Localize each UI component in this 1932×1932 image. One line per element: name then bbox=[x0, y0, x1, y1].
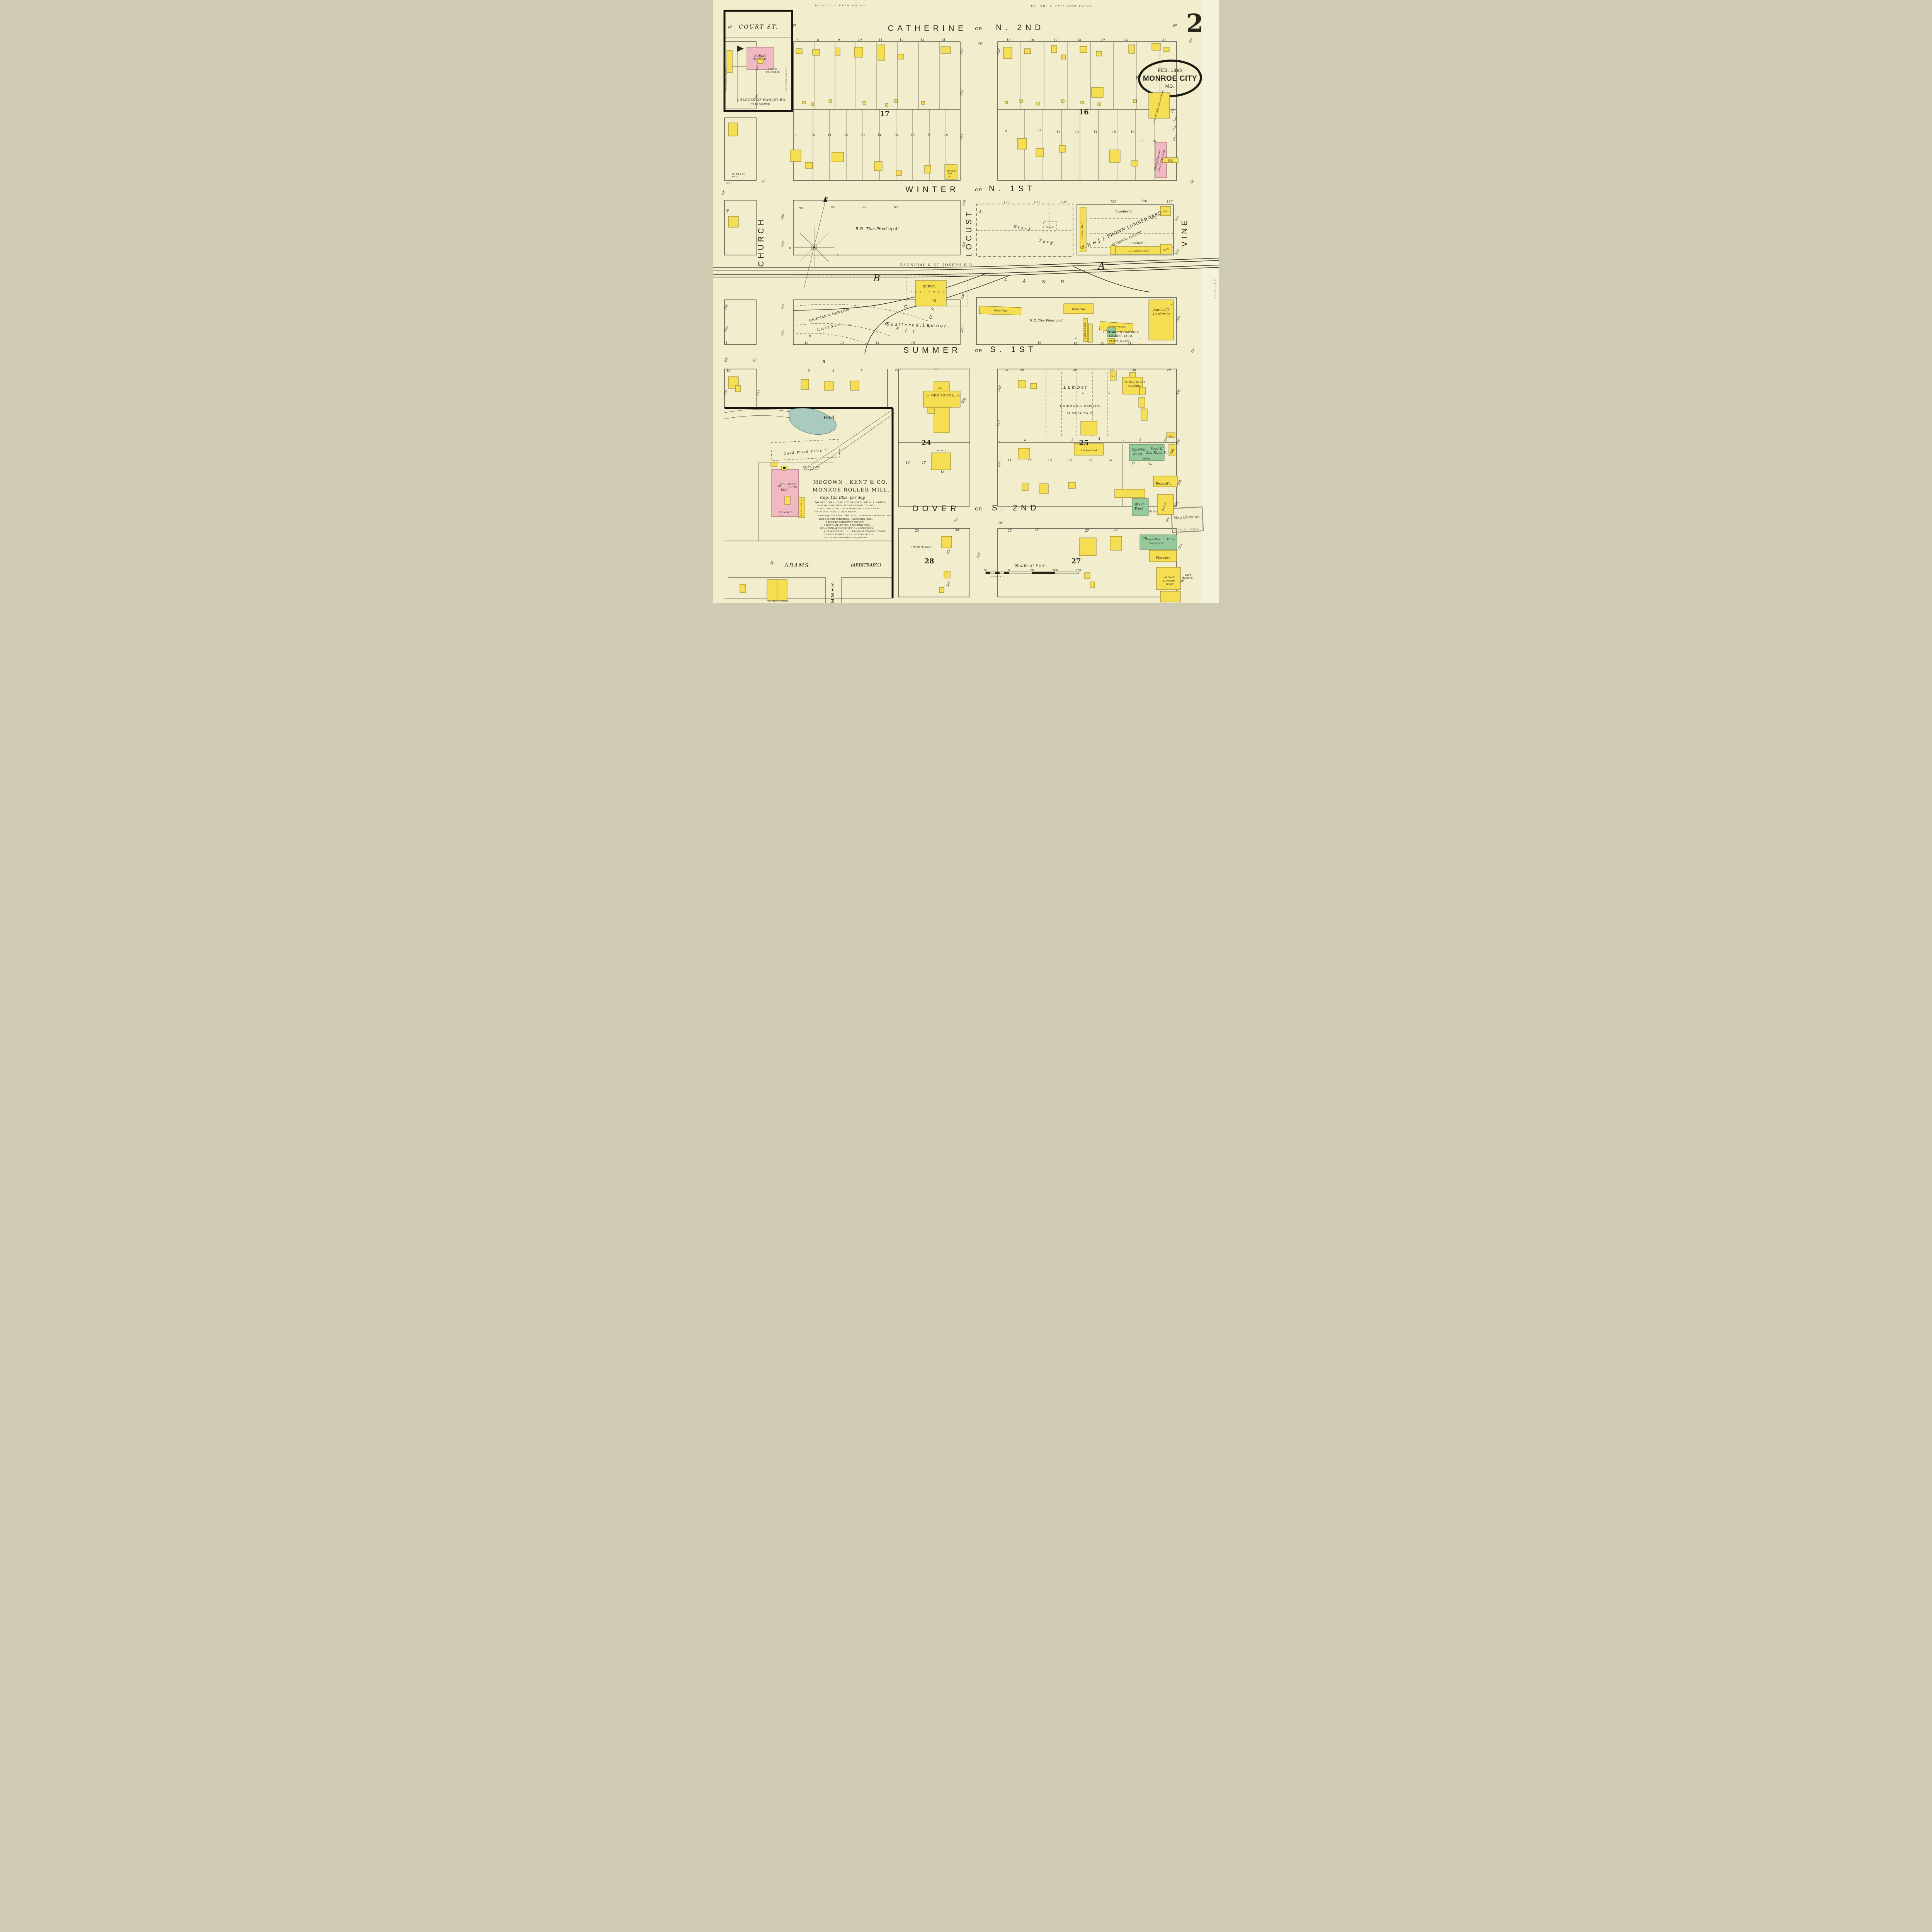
map-label: 6' bbox=[1082, 393, 1084, 395]
map-label: 2ND 2 SMITH PURIFIERS. 1 SCALPING REEL. bbox=[819, 518, 873, 520]
building bbox=[790, 150, 801, 162]
map-label: 78' bbox=[998, 521, 1003, 525]
map-label: 78' bbox=[978, 42, 983, 46]
map-label: FR. STABLE. bbox=[766, 71, 781, 73]
map-label: 92 bbox=[894, 206, 898, 209]
block-number-17: 17 bbox=[880, 110, 889, 118]
map-label: 4 bbox=[1098, 437, 1100, 440]
building bbox=[1005, 101, 1008, 104]
building bbox=[1024, 49, 1031, 54]
map-label: 25 bbox=[1007, 529, 1012, 532]
building bbox=[1131, 161, 1138, 166]
map-label: 3 B. bbox=[779, 515, 783, 517]
building bbox=[1160, 591, 1180, 602]
map-label: VAC. bbox=[1168, 435, 1174, 438]
map-label: 23 bbox=[933, 367, 937, 371]
map-label: ENG. 128 H.P. bbox=[780, 483, 796, 485]
label-megown-kent: MEGOWN , KENT & CO. bbox=[813, 480, 888, 485]
map-label: 3RD 4 DUNLAP FLOUR REELS - 2 PURIFIERS. bbox=[820, 527, 874, 530]
map-label: Lumber 5' bbox=[1129, 241, 1146, 245]
map-label: 18 bbox=[944, 133, 948, 137]
map-label: 12 bbox=[844, 133, 848, 137]
building bbox=[1079, 538, 1096, 556]
building bbox=[1141, 409, 1147, 420]
map-label: 14 bbox=[876, 341, 879, 345]
map-label: 93 bbox=[862, 206, 866, 209]
building bbox=[727, 50, 732, 73]
building bbox=[1037, 102, 1040, 105]
scale-title: Scale of Feet. bbox=[1015, 563, 1048, 568]
map-label: 40 30 20 10 bbox=[991, 576, 1004, 578]
map-label: 24 bbox=[955, 528, 959, 532]
building bbox=[1096, 51, 1102, 56]
building bbox=[854, 47, 863, 57]
map-rect bbox=[1032, 572, 1055, 574]
map-label: 8' bbox=[809, 334, 812, 338]
map-label: Bl. Sm. bbox=[1149, 510, 1158, 513]
map-label: 127 bbox=[1167, 200, 1173, 203]
building bbox=[1081, 421, 1097, 435]
map-label: 10 bbox=[726, 369, 730, 372]
map-label: 15 bbox=[911, 341, 915, 345]
map-label: 13 bbox=[1048, 459, 1052, 462]
map-label: 125 bbox=[1110, 200, 1116, 203]
building bbox=[1061, 55, 1066, 59]
map-date: FEB. 1893 bbox=[1158, 68, 1182, 73]
label-platform: P L A T F O R M . bbox=[911, 291, 950, 293]
label-railroad: HANNIBAL & ST. JOSEPH R.R. bbox=[900, 264, 975, 267]
map-label: W bbox=[789, 247, 791, 250]
map-rect bbox=[995, 572, 1000, 574]
map-label: 11 bbox=[879, 38, 883, 42]
map-label: Shop. bbox=[1133, 452, 1143, 456]
label-depot: DEPOT. bbox=[923, 285, 936, 288]
building bbox=[1040, 484, 1048, 494]
map-label: 100' TO bbox=[768, 68, 777, 71]
map-label: 2 bbox=[1163, 447, 1164, 449]
map-label: 8 bbox=[817, 38, 819, 42]
map-label: 20 bbox=[1100, 342, 1104, 345]
note-hanley: 2 BLOCKS OF HANLEY HO. bbox=[737, 98, 787, 102]
building bbox=[1092, 87, 1103, 97]
map-label: 23 bbox=[915, 529, 919, 532]
label-public-school: PUBLIC bbox=[754, 54, 767, 58]
map-label: 14 bbox=[1068, 459, 1072, 462]
map-label: N bbox=[1041, 279, 1046, 284]
map-label: A bbox=[978, 209, 982, 214]
map-label: EA. FLOOR. FUEL: COAL & WOOD. bbox=[815, 511, 856, 513]
building bbox=[1129, 45, 1134, 53]
map-label: 12 bbox=[804, 341, 808, 345]
map-label: LUMBER YARD. bbox=[1067, 412, 1095, 415]
building bbox=[835, 48, 840, 55]
map-state: MO. bbox=[1165, 84, 1175, 89]
map-label: R bbox=[822, 359, 825, 364]
map-label: Painting 2nd. bbox=[1148, 542, 1165, 545]
map-label: 50 bbox=[984, 568, 987, 572]
building bbox=[824, 382, 833, 390]
map-label: Lumber Shed. bbox=[1084, 322, 1087, 339]
map-label: 19 bbox=[1101, 38, 1105, 42]
building bbox=[728, 216, 738, 227]
building bbox=[1018, 380, 1026, 388]
map-label: 28 bbox=[1132, 368, 1136, 372]
map-label: PRIVATE. bbox=[936, 450, 947, 452]
label-carriage-wagon-depot: CARRIAGE bbox=[1163, 577, 1175, 579]
map-label: B bbox=[873, 273, 880, 284]
label-roller-mill: MONROE ROLLER MILL. bbox=[813, 487, 890, 493]
map-label: 13 bbox=[840, 341, 844, 345]
building bbox=[942, 536, 952, 548]
map-label: Off. bbox=[1109, 340, 1113, 342]
label-hickman-hawkins-south: HICKMAN & HAWKINS bbox=[1060, 405, 1102, 408]
building bbox=[740, 584, 745, 593]
map-label: 17 bbox=[1131, 462, 1136, 465]
map-label: Grain W.Ho. bbox=[779, 511, 794, 514]
building bbox=[777, 580, 787, 600]
building bbox=[850, 381, 859, 390]
map-label: A bbox=[1097, 260, 1105, 271]
map-label: 6' bbox=[1108, 393, 1110, 395]
building bbox=[1085, 573, 1090, 579]
map-label: 17 bbox=[1139, 139, 1143, 143]
margin-note: DETACHED FARM DW'GS bbox=[815, 5, 866, 7]
street-n-1st: N. 1ST bbox=[989, 184, 1036, 193]
block-number-24: 24 bbox=[921, 439, 931, 447]
building bbox=[1129, 372, 1136, 377]
map-label: 6' bbox=[1075, 338, 1077, 340]
building bbox=[1139, 387, 1146, 395]
map-label: 150 bbox=[1076, 568, 1081, 572]
map-label: 13 bbox=[1075, 130, 1079, 134]
map-label: W I N D O W S bbox=[801, 500, 803, 517]
map-label: 10 bbox=[858, 38, 862, 42]
label-grain-warehouse: Grain W.Ho. bbox=[994, 309, 1009, 312]
building bbox=[1017, 138, 1027, 149]
map-label: N O E X P O S U R E . bbox=[725, 67, 728, 92]
sanborn-map-page: DETACHED FARM DW'GSBR. CH. & DETACHED DW… bbox=[713, 0, 1219, 603]
building bbox=[885, 104, 888, 106]
building bbox=[813, 49, 820, 55]
building bbox=[1133, 100, 1136, 103]
map-label: 18 bbox=[940, 470, 944, 474]
label-grain-warehouse: Grain W.Ho. bbox=[1072, 308, 1087, 311]
map-label: 2 GRAY CENTRIF. " - 1 DUST COLLECTOR. bbox=[824, 534, 874, 536]
map-label: 100 bbox=[1053, 568, 1058, 572]
map-label: L.E.T. bbox=[1185, 574, 1191, 577]
map-label: 9 bbox=[838, 38, 840, 42]
building bbox=[1059, 145, 1065, 152]
building bbox=[1164, 47, 1169, 52]
label-monroe-house: MONROE HO. bbox=[1124, 381, 1146, 384]
map-label: NO WATCHMAN. HEAT: 1 STOVE 1ST FL. OF MI… bbox=[815, 502, 886, 504]
street-adams: ADAMS. bbox=[784, 563, 811, 569]
building bbox=[922, 101, 925, 104]
map-label: Feed & bbox=[1150, 447, 1163, 451]
map-label: E bbox=[837, 254, 838, 256]
map-label: OR bbox=[975, 507, 982, 512]
map-label: 16 bbox=[906, 461, 910, 464]
map-label: 17 bbox=[922, 461, 926, 464]
map-label: 20 bbox=[1124, 38, 1128, 42]
map-label: 14 bbox=[1094, 130, 1097, 134]
map-label: (OLD) bbox=[1143, 457, 1150, 460]
map-label: Lumber Shed. bbox=[1081, 222, 1084, 239]
map-label: 16 bbox=[1108, 459, 1112, 462]
map-label: 0 bbox=[1008, 568, 1010, 572]
map-label: DEPOT. bbox=[1165, 583, 1174, 586]
map-label: 50 bbox=[1031, 568, 1034, 572]
map-label: 27 bbox=[1109, 368, 1114, 372]
map-label: 26 bbox=[1034, 528, 1039, 532]
map-label: 60' TO 2 ST. bbox=[732, 173, 745, 175]
map-label: 22 bbox=[895, 368, 899, 372]
map-rect bbox=[986, 572, 990, 574]
label-repository: Reposit'y bbox=[1155, 482, 1171, 486]
building bbox=[878, 45, 885, 60]
building bbox=[944, 571, 950, 578]
map-label: OFF. bbox=[1111, 376, 1116, 378]
street-summer: SUMMER bbox=[903, 346, 961, 355]
map-label: (ARBITRARY.) bbox=[851, 563, 881, 568]
map-label: 8' bbox=[848, 323, 851, 327]
label-carpenter-shop: Carp'ter bbox=[1132, 448, 1146, 452]
building bbox=[728, 123, 738, 136]
map-label: 2nd Hand S. bbox=[1146, 451, 1167, 455]
map-label: 21 bbox=[1127, 342, 1131, 345]
map-label: 15 bbox=[1112, 130, 1116, 134]
building bbox=[1022, 483, 1028, 491]
map-label: 122 bbox=[1003, 201, 1009, 204]
building bbox=[1139, 397, 1145, 407]
map-label: 25 bbox=[1020, 368, 1024, 372]
building bbox=[1110, 536, 1122, 550]
map-label: 29 bbox=[1167, 368, 1171, 372]
sheet-number: 2 bbox=[1186, 9, 1204, 38]
map-label: SCALE. bbox=[1046, 226, 1054, 229]
map-label: 124 bbox=[1061, 201, 1066, 204]
building bbox=[803, 101, 805, 104]
map-label: N bbox=[826, 197, 828, 199]
block-number-25: 25 bbox=[1079, 439, 1088, 447]
map-label: 12 bbox=[1028, 459, 1032, 462]
building bbox=[1098, 103, 1100, 105]
label-wood-work: Wood bbox=[1134, 503, 1144, 507]
map-label: FR. D. bbox=[732, 176, 739, 178]
building bbox=[796, 49, 802, 54]
map-label: N O E X P O S U R E . bbox=[786, 67, 788, 92]
map-label: 28 bbox=[1113, 528, 1117, 532]
map-label: BOARDING. bbox=[1128, 385, 1141, 388]
building bbox=[1036, 148, 1044, 157]
street-winter: WINTER bbox=[905, 185, 959, 194]
building bbox=[863, 101, 866, 104]
map-label: 12 bbox=[900, 38, 903, 42]
map-label: 15 bbox=[1007, 38, 1010, 42]
map-label: 123 bbox=[1034, 201, 1039, 204]
building-depot bbox=[915, 281, 946, 306]
map-label: 6' bbox=[1053, 393, 1054, 395]
map-label: 11 bbox=[828, 133, 832, 137]
map-label: 13 bbox=[861, 133, 865, 137]
building bbox=[896, 171, 901, 175]
map-label: 17 bbox=[1054, 38, 1058, 42]
map-label: BR. CH. 6' ABV. bbox=[803, 466, 821, 468]
block-number-28: 28 bbox=[924, 557, 934, 565]
map-label: L bbox=[1004, 277, 1007, 282]
street-n-2nd: N. 2ND bbox=[996, 23, 1044, 32]
map-label: 95 bbox=[799, 206, 803, 210]
map-label: 54' TO FR. STABLE. bbox=[767, 600, 789, 603]
map-label: 126 bbox=[1141, 199, 1147, 203]
map-label: 18 bbox=[1152, 139, 1156, 143]
map-label: 6 bbox=[1024, 439, 1026, 442]
building bbox=[1109, 150, 1120, 162]
street-catherine: CATHERINE bbox=[888, 24, 967, 33]
street-church: CHURCH bbox=[757, 217, 765, 267]
map-label: COAL OIL LANTERNS. 1½" V.P. CONNECTED WI… bbox=[817, 504, 877, 507]
map-label: MCH 93. bbox=[1183, 577, 1193, 580]
map-label: 16 bbox=[911, 133, 915, 137]
map-label: D bbox=[1060, 279, 1064, 284]
building-private bbox=[931, 453, 951, 470]
map-label: 2½ bbox=[948, 175, 952, 178]
building bbox=[832, 152, 844, 162]
building bbox=[898, 54, 904, 59]
map-label: 12 bbox=[1056, 130, 1060, 134]
map-label: 17 bbox=[927, 133, 932, 137]
building bbox=[1115, 489, 1145, 498]
building bbox=[941, 47, 951, 53]
map-label: 1½ bbox=[957, 395, 961, 397]
building bbox=[1090, 582, 1095, 587]
building bbox=[925, 165, 931, 173]
building bbox=[1088, 324, 1092, 342]
building bbox=[1020, 100, 1022, 102]
map-label: 3 B. bbox=[777, 485, 781, 488]
map-label: 178' TO FR. DW'G. bbox=[911, 546, 932, 549]
map-label: 16 bbox=[1030, 38, 1034, 42]
map-label: R.R. Ties Piled up 4' bbox=[1029, 319, 1063, 323]
map-label: 21 bbox=[1162, 38, 1166, 42]
map-rect bbox=[1004, 572, 1009, 574]
label-hanley-house: HANLEY bbox=[947, 170, 957, 172]
building bbox=[785, 496, 790, 505]
label-pond: Pond. bbox=[823, 415, 835, 420]
map-label: 110 bbox=[1167, 159, 1173, 163]
map-label: 15 bbox=[1088, 459, 1092, 462]
map-label: 11 bbox=[724, 341, 728, 345]
map-label: 1½ bbox=[926, 395, 930, 397]
label-rr-ties: R.R. Ties Piled up 4' bbox=[855, 226, 899, 231]
map-label: 11 bbox=[1008, 459, 1012, 462]
map-label: 3 bbox=[1122, 439, 1124, 442]
map-label: 2½ bbox=[939, 387, 942, 389]
building bbox=[1061, 100, 1064, 102]
paper-margin bbox=[1202, 0, 1219, 603]
map-label: 1 DUST COLLECTOR. 1 BOLTING REEL. bbox=[824, 524, 871, 527]
map-label: L u m b e r bbox=[1063, 385, 1087, 390]
map-label: Storage. bbox=[1156, 556, 1170, 560]
map-label: 24 bbox=[1004, 368, 1009, 372]
map-label: 9 bbox=[1005, 129, 1007, 133]
map-label: 16 bbox=[1131, 130, 1134, 134]
map-label: & WAGON bbox=[1163, 580, 1175, 582]
street-summer-south: SUMMER. bbox=[830, 579, 835, 603]
map-label: 1 EUREKA SEPARATOR 700 REV. bbox=[826, 521, 864, 524]
map-label: 5' bbox=[1138, 338, 1140, 340]
building bbox=[874, 162, 882, 171]
label-wagon-shop: Wagon Shop. bbox=[1146, 538, 1161, 541]
map-label: 97 bbox=[726, 182, 731, 185]
building bbox=[1031, 383, 1037, 389]
building bbox=[771, 462, 777, 467]
map-label: Machinery: 1ST 6 DBL. ROLLERS - 2 FLOUR … bbox=[817, 515, 892, 517]
building bbox=[1152, 43, 1160, 50]
building bbox=[1080, 46, 1087, 53]
map-label: Lumber Shed. bbox=[1081, 449, 1098, 452]
map-label: Cap. 125 Bbls. per day. bbox=[820, 496, 865, 500]
building bbox=[783, 467, 786, 469]
map-label: 2 bbox=[749, 49, 751, 52]
map-label: 16 bbox=[1037, 341, 1041, 345]
building bbox=[1068, 482, 1075, 488]
building bbox=[1003, 47, 1012, 59]
building bbox=[829, 100, 832, 102]
map-label: 19 bbox=[1073, 342, 1077, 345]
map-label: 27 bbox=[1085, 529, 1089, 532]
map-label: ROOF OF MILL. bbox=[803, 469, 821, 471]
map-label: 9 bbox=[795, 133, 797, 137]
map-label: 11 bbox=[1038, 129, 1042, 132]
map-label: 5 bbox=[1071, 438, 1073, 441]
building bbox=[811, 103, 814, 105]
map-label: STM F.P. NO HOSE. 1 SALT WATER BBLS & BU… bbox=[817, 508, 879, 510]
map-label: Work bbox=[1135, 507, 1144, 511]
block-number-16: 16 bbox=[1079, 108, 1088, 116]
map-label: 1 EXCELSIOR BRANDUSTER, 400 REV. bbox=[822, 537, 868, 539]
map-label: 4 SILVERCREEK " " - 1 EUREKA SEPARATOR 7… bbox=[824, 531, 887, 533]
map-label: HO. bbox=[948, 173, 952, 175]
compass-hub-dot bbox=[813, 247, 815, 248]
building bbox=[939, 587, 944, 593]
map-label: 18 bbox=[1148, 463, 1152, 466]
map-label: Lumber 4' bbox=[1115, 210, 1133, 214]
label-gem-hotel: GEM HOTEL, bbox=[931, 394, 955, 397]
pencil-note: CUT OFF bbox=[1214, 279, 1218, 298]
map-label: G bbox=[904, 304, 907, 310]
map-label: OFF. bbox=[1163, 211, 1168, 213]
map-label: LUMBER YARD. bbox=[1109, 335, 1133, 338]
sanborn-map-sheet-monroe-city: DETACHED FARM DW'GSBR. CH. & DETACHED DW… bbox=[713, 0, 1219, 603]
map-label: 1½ Lumber Shed. bbox=[1128, 250, 1150, 253]
map-label: 10 bbox=[811, 133, 815, 137]
map-label: Carp'r bbox=[1107, 330, 1116, 333]
street-locust: LOCUST bbox=[965, 209, 973, 257]
map-label: 1½ bbox=[1170, 303, 1173, 306]
map-label: Implem'ts. bbox=[1153, 312, 1170, 316]
map-label: OR bbox=[975, 27, 982, 31]
building bbox=[1051, 46, 1057, 53]
map-label: 94 bbox=[831, 206, 835, 209]
street-s-2nd: S. 2ND bbox=[992, 503, 1040, 512]
map-label: 18 bbox=[1077, 38, 1081, 42]
map-label: 13 bbox=[920, 38, 924, 42]
building bbox=[767, 580, 777, 600]
building bbox=[806, 162, 813, 168]
street-dover: DOVER bbox=[913, 504, 960, 513]
label-agricultural-implements: Agricult'l bbox=[1153, 308, 1169, 312]
